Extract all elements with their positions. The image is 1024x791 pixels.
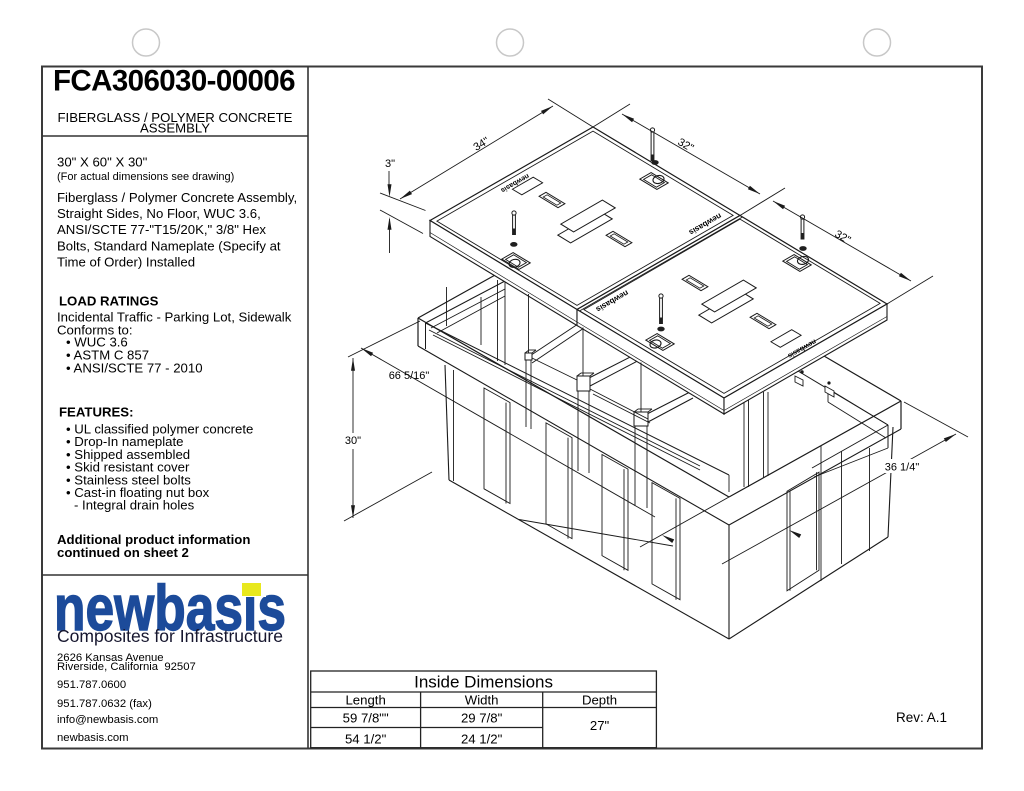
svg-text:info@newbasis.com: info@newbasis.com (57, 714, 158, 726)
svg-text:951.787.0632 (fax): 951.787.0632 (fax) (57, 698, 152, 710)
svg-text:FEATURES:: FEATURES: (59, 405, 133, 420)
svg-text:ASSEMBLY: ASSEMBLY (140, 121, 210, 136)
svg-text:59 7/8"": 59 7/8"" (343, 711, 389, 726)
svg-text:ANSI/SCTE 77-"T15/20K," 3/8" H: ANSI/SCTE 77-"T15/20K," 3/8" Hex (57, 222, 266, 237)
svg-text:(For actual dimensions see dra: (For actual dimensions see drawing) (57, 171, 234, 183)
svg-text:951.787.0600: 951.787.0600 (57, 679, 126, 691)
svg-text:24 1/2": 24 1/2" (461, 732, 503, 747)
svg-text:newbasis.com: newbasis.com (57, 732, 129, 744)
svg-text:36 1/4": 36 1/4" (885, 462, 920, 474)
svg-text:Composites for Infrastructure: Composites for Infrastructure (57, 626, 283, 646)
svg-text:30" X 60" X 30": 30" X 60" X 30" (57, 155, 148, 170)
svg-text:LOAD RATINGS: LOAD RATINGS (59, 294, 159, 309)
svg-text:29 7/8": 29 7/8" (461, 711, 503, 726)
svg-text:66 5/16": 66 5/16" (389, 370, 430, 382)
svg-text:- Integral drain holes: - Integral drain holes (74, 498, 195, 513)
svg-text:Inside Dimensions: Inside Dimensions (414, 673, 553, 692)
svg-text:• ANSI/SCTE 77 - 2010: • ANSI/SCTE 77 - 2010 (66, 361, 203, 376)
svg-text:54 1/2": 54 1/2" (345, 732, 387, 747)
svg-text:Length: Length (345, 693, 385, 708)
svg-text:FCA306030-00006: FCA306030-00006 (53, 65, 295, 98)
svg-text:3": 3" (385, 158, 395, 170)
svg-text:Riverside, California 92507: Riverside, California 92507 (57, 661, 196, 673)
svg-text:27": 27" (590, 718, 610, 733)
svg-text:Time of Order) Installed: Time of Order) Installed (57, 254, 195, 269)
svg-text:Fiberglass / Polymer Concrete: Fiberglass / Polymer Concrete Assembly, (57, 190, 297, 205)
svg-text:30": 30" (345, 435, 361, 447)
svg-text:Bolts, Standard Nameplate (Spe: Bolts, Standard Nameplate (Specify at (57, 238, 281, 253)
svg-text:Straight Sides, No Floor, WUC: Straight Sides, No Floor, WUC 3.6, (57, 206, 261, 221)
svg-text:Rev: A.1: Rev: A.1 (896, 710, 947, 725)
svg-text:Depth: Depth (582, 693, 617, 708)
svg-text:continued on sheet 2: continued on sheet 2 (57, 545, 189, 560)
svg-text:Width: Width (465, 693, 499, 708)
